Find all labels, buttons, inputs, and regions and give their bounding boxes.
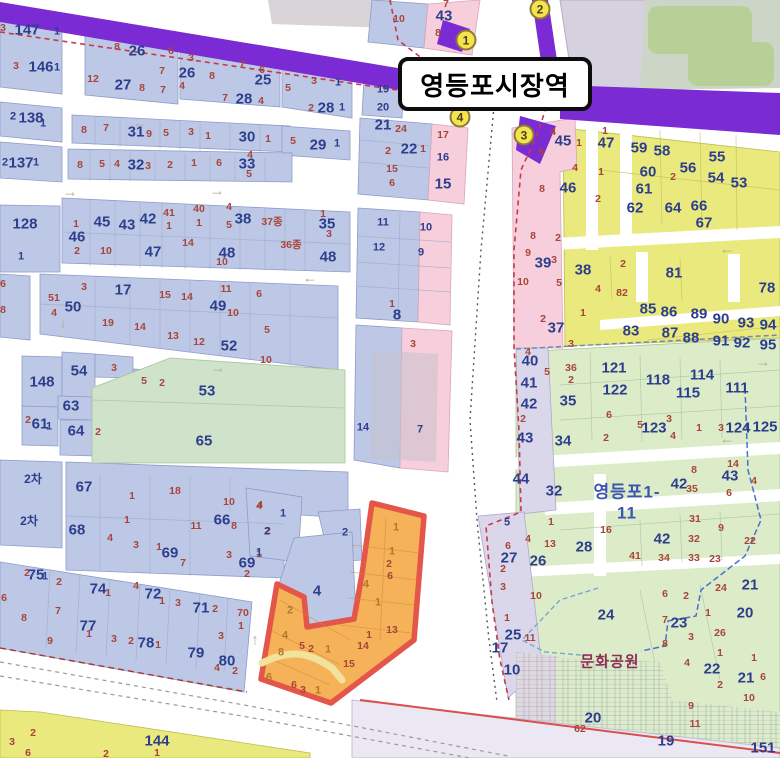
parcel-number: 6 — [266, 673, 272, 684]
parcel-number: 2 — [30, 728, 36, 739]
parcel-number: 3 — [300, 685, 306, 696]
parcel-number: 46 — [69, 230, 86, 245]
parcel-number: 61 — [636, 182, 653, 197]
parcel-number: 13 — [544, 539, 556, 550]
parcel-number: 9 — [718, 523, 724, 534]
parcel-number: 1 — [335, 78, 341, 89]
parcel-number: 90 — [713, 312, 730, 327]
parcel-number: 17 — [115, 283, 132, 298]
parcel-number: 3 — [81, 282, 87, 293]
parcel-number: 32 — [688, 534, 700, 545]
parcel-number: 1 — [54, 27, 60, 38]
parcel-number: 3 — [410, 339, 416, 350]
parcel-number: 2차 — [20, 515, 38, 527]
parcel-number: 1 — [393, 523, 399, 534]
parcel-number: 6 — [291, 680, 297, 691]
parcel-number: 14 — [182, 238, 194, 249]
parcel-number: 29 — [310, 138, 327, 153]
parcel-number: 9 — [47, 636, 53, 647]
parcel-number: 83 — [623, 324, 640, 339]
parcel-number: 7 — [662, 615, 668, 626]
direction-arrow: ↑ — [251, 632, 259, 649]
parcel-number: 1 — [18, 252, 24, 263]
parcel-number: 3 — [568, 339, 574, 350]
parcel-number: 93 — [738, 316, 755, 331]
parcel-number: 5 — [99, 159, 105, 170]
parcel-number: 2 — [620, 259, 626, 270]
parcel-number: 1 — [548, 517, 554, 528]
parcel-number: 6 — [1, 593, 7, 604]
parcel-number: 35 — [560, 394, 577, 409]
parcel-number: 22 — [704, 662, 721, 677]
parcel-number: 2차 — [24, 473, 42, 485]
parcel-number: 2 — [500, 564, 506, 575]
parcel-number: 5 — [504, 518, 510, 529]
parcel-number: 8 — [139, 83, 145, 94]
parcel-number: 1 — [325, 645, 331, 656]
parcel-number: 32 — [546, 484, 563, 499]
parcel-number: 10 — [216, 257, 228, 268]
parcel-number: 8 — [539, 184, 545, 195]
label-layer: 3147131461826631227877264872567284315228… — [0, 0, 780, 758]
parcel-number: 14 — [134, 322, 146, 333]
parcel-number: 47 — [145, 245, 162, 260]
parcel-number: 40 — [193, 204, 205, 215]
parcel-number: 14 — [357, 641, 369, 652]
parcel-number: 3 — [145, 161, 151, 172]
parcel-number: 5 — [163, 128, 169, 139]
parcel-number: 2 — [670, 172, 676, 183]
parcel-number: 2 — [520, 414, 526, 425]
parcel-number: 1 — [124, 515, 130, 526]
parcel-number: 3 — [0, 23, 6, 34]
parcel-number: 81 — [666, 266, 683, 281]
direction-arrow: ← — [133, 115, 148, 132]
parcel-number: 4 — [133, 581, 139, 592]
parcel-number: 4 — [179, 81, 185, 92]
parcel-number: 12 — [373, 243, 385, 254]
parcel-number: 42 — [654, 532, 671, 547]
subway-exit-badge[interactable]: 1 — [456, 30, 477, 51]
parcel-number: 74 — [90, 582, 107, 597]
parcel-number: 2 — [212, 604, 218, 615]
parcel-number: 1 — [205, 131, 211, 142]
parcel-number: 1 — [580, 308, 586, 319]
place-label: 문화공원 — [580, 655, 639, 670]
parcel-number: 1 — [265, 134, 271, 145]
parcel-number: 5 — [538, 147, 544, 158]
parcel-number: 1 — [602, 126, 608, 137]
parcel-number: 28 — [576, 540, 593, 555]
parcel-number: 67 — [76, 480, 93, 495]
parcel-number: 7 — [180, 558, 186, 569]
parcel-number: 2 — [287, 606, 293, 617]
parcel-number: 4 — [684, 658, 690, 669]
parcel-number: 6 — [662, 589, 668, 600]
parcel-number: 1 — [196, 218, 202, 229]
parcel-number: 1 — [33, 158, 39, 169]
parcel-number: 3 — [111, 634, 117, 645]
subway-exit-badge[interactable]: 2 — [530, 0, 551, 20]
parcel-number: 44 — [513, 472, 530, 487]
parcel-number: 42 — [140, 212, 157, 227]
parcel-number: 26 — [714, 628, 726, 639]
parcel-number: 7 — [239, 60, 245, 71]
parcel-number: 79 — [188, 646, 205, 661]
parcel-number: 5 — [285, 83, 291, 94]
parcel-number: 3 — [311, 76, 317, 87]
parcel-number: 8 — [393, 308, 401, 323]
parcel-number: 4 — [282, 631, 288, 642]
parcel-number: 1 — [86, 629, 92, 640]
parcel-number: 5 — [141, 376, 147, 387]
parcel-number: 8 — [77, 160, 83, 171]
parcel-number: 4 — [258, 96, 264, 107]
parcel-number: 3 — [666, 414, 672, 425]
parcel-number: 6 — [168, 46, 174, 57]
parcel-number: 35 — [686, 484, 698, 495]
direction-arrow: → — [756, 354, 771, 371]
parcel-number: 3 — [551, 255, 557, 266]
parcel-number: 3 — [218, 631, 224, 642]
parcel-number: 1 — [705, 608, 711, 619]
parcel-number: 147 — [14, 23, 39, 38]
map-canvas[interactable]: 영등포시장역 314713146182663122787726487256728… — [0, 0, 780, 758]
parcel-number: 10 — [504, 663, 521, 678]
parcel-number: 115 — [676, 386, 700, 401]
parcel-number: 4 — [313, 584, 321, 599]
parcel-number: 36 — [565, 363, 577, 374]
parcel-number: 26 — [179, 66, 196, 81]
parcel-number: 33 — [688, 553, 700, 564]
parcel-number: 59 — [631, 141, 648, 156]
parcel-number: 10 — [420, 223, 432, 234]
parcel-number: 1 — [191, 158, 197, 169]
parcel-number: 34 — [555, 434, 572, 449]
parcel-number: 1 — [154, 748, 160, 758]
parcel-number: 4 — [114, 159, 120, 170]
parcel-number: 1 — [339, 103, 345, 114]
parcel-number: 2 — [103, 749, 109, 758]
parcel-number: 8 — [21, 613, 27, 624]
parcel-number: 85 — [640, 302, 657, 317]
parcel-number: 10 — [223, 497, 235, 508]
parcel-number: 87 — [662, 326, 679, 341]
parcel-number: 2 — [25, 415, 31, 426]
parcel-number: 94 — [760, 318, 777, 333]
parcel-number: 8 — [691, 465, 697, 476]
parcel-number: 13 — [386, 625, 398, 636]
parcel-number: 54 — [708, 171, 725, 186]
parcel-number: 64 — [665, 201, 682, 216]
parcel-number: 2 — [95, 427, 101, 438]
parcel-number: 3 — [500, 582, 506, 593]
parcel-number: 19 — [377, 85, 389, 96]
direction-arrow: ← — [720, 241, 735, 258]
parcel-number: 9 — [418, 248, 424, 259]
parcel-number: 24 — [715, 583, 727, 594]
parcel-number: 41 — [163, 208, 175, 219]
parcel-number: 2 — [603, 433, 609, 444]
parcel-number: 24 — [395, 124, 407, 135]
parcel-number: 19 — [658, 734, 675, 749]
direction-arrow: ← — [303, 270, 318, 287]
parcel-number: 1 — [696, 423, 702, 434]
parcel-number: 128 — [12, 217, 37, 232]
parcel-number: 7 — [159, 66, 165, 77]
parcel-number: 26 — [129, 44, 146, 59]
parcel-number: 1 — [576, 138, 582, 149]
parcel-number: 2 — [555, 233, 561, 244]
parcel-number: 53 — [731, 176, 748, 191]
parcel-number: 66 — [214, 513, 231, 528]
parcel-number: 65 — [196, 434, 213, 449]
parcel-number: 4 — [214, 663, 220, 674]
parcel-number: 15 — [435, 177, 452, 192]
parcel-number: 4 — [751, 476, 757, 487]
parcel-number: 1 — [159, 596, 165, 607]
parcel-number: 23 — [709, 554, 721, 565]
parcel-number: 42 — [671, 477, 688, 492]
parcel-number: 7 — [103, 123, 109, 134]
parcel-number: 42 — [521, 397, 538, 412]
parcel-number: 16 — [600, 525, 612, 536]
parcel-number: 1 — [366, 630, 372, 641]
parcel-number: 6 — [726, 488, 732, 499]
parcel-number: 62 — [627, 201, 644, 216]
parcel-number: 4 — [525, 534, 531, 545]
parcel-number: 11 — [689, 719, 700, 730]
parcel-number: 148 — [29, 375, 54, 390]
parcel-number: 43 — [722, 469, 739, 484]
parcel-number: 2 — [385, 146, 391, 157]
parcel-number: 38 — [575, 263, 592, 278]
parcel-number: 1 — [129, 491, 135, 502]
parcel-number: 6 — [256, 289, 262, 300]
parcel-number: 88 — [683, 331, 700, 346]
parcel-number: 46 — [560, 181, 577, 196]
parcel-number: 14 — [357, 423, 369, 434]
parcel-number: 10 — [393, 14, 405, 25]
parcel-number: 15 — [386, 164, 398, 175]
parcel-number: 5 — [299, 641, 305, 652]
parcel-number: 43 — [119, 218, 136, 233]
parcel-number: 55 — [709, 150, 726, 165]
parcel-number: 1 — [40, 119, 46, 130]
parcel-number: 2 — [595, 194, 601, 205]
parcel-number: 48 — [320, 250, 337, 265]
parcel-number: 5 — [556, 278, 562, 289]
parcel-number: 151 — [750, 741, 775, 756]
direction-arrow: ← — [720, 431, 735, 448]
parcel-number: 3 — [688, 632, 694, 643]
parcel-number: 1 — [375, 598, 381, 609]
parcel-number: 43 — [517, 431, 534, 446]
parcel-number: 2 — [244, 569, 250, 580]
parcel-number: 6 — [25, 748, 31, 758]
parcel-number: 1 — [166, 221, 172, 232]
parcel-number: 10 — [260, 355, 272, 366]
parcel-number: 34 — [658, 553, 670, 564]
parcel-number: 2 — [308, 103, 314, 114]
parcel-number: 2 — [167, 160, 173, 171]
station-label[interactable]: 영등포시장역 — [398, 57, 592, 111]
parcel-number: 1 — [320, 209, 326, 220]
parcel-number: 6 — [389, 178, 395, 189]
parcel-number: 123 — [641, 421, 666, 436]
parcel-number: 1 — [155, 640, 161, 651]
parcel-number: 1 — [504, 613, 510, 624]
parcel-number: 24 — [598, 608, 615, 623]
parcel-number: 8 — [114, 42, 120, 53]
parcel-number: 2 — [308, 644, 314, 655]
parcel-number: 15 — [159, 290, 171, 301]
parcel-number: 2 — [56, 577, 62, 588]
parcel-number: 41 — [521, 376, 538, 391]
parcel-number: 2 — [2, 158, 8, 169]
parcel-number: 45 — [94, 215, 111, 230]
parcel-number: 56 — [680, 161, 697, 176]
parcel-number: 1 — [717, 648, 723, 659]
parcel-number: 10 — [743, 693, 755, 704]
parcel-number: 8 — [0, 305, 6, 316]
parcel-number: 1 — [334, 139, 340, 150]
parcel-number: 4 — [247, 150, 253, 161]
parcel-number: 45 — [555, 134, 572, 149]
parcel-number: 13 — [167, 331, 179, 342]
parcel-number: 52 — [221, 339, 238, 354]
parcel-number: 17 — [437, 130, 449, 141]
parcel-number: 67 — [696, 216, 713, 231]
parcel-number: 19 — [102, 318, 114, 329]
parcel-number: 4 — [670, 431, 676, 442]
parcel-number: 37 — [548, 321, 565, 336]
parcel-number: 21 — [738, 671, 755, 686]
parcel-number: 17 — [492, 641, 509, 656]
parcel-number: 23 — [671, 616, 688, 631]
parcel-number: 10 — [227, 308, 239, 319]
parcel-number: 6 — [387, 571, 393, 582]
parcel-number: 8 — [662, 639, 668, 650]
parcel-number: 26 — [530, 554, 547, 569]
parcel-number: 1 — [54, 63, 60, 74]
parcel-number: 41 — [629, 551, 641, 562]
parcel-number: 2 — [128, 636, 134, 647]
subway-exit-badge[interactable]: 3 — [514, 125, 535, 146]
parcel-number: 1 — [389, 547, 395, 558]
parcel-number: 3 — [9, 737, 15, 748]
parcel-number: 3 — [188, 127, 194, 138]
parcel-number: 7 — [55, 606, 61, 617]
parcel-number: 70 — [237, 608, 249, 619]
parcel-number: 2 — [540, 314, 546, 325]
parcel-number: 62 — [574, 724, 586, 735]
parcel-number: 82 — [616, 288, 628, 299]
parcel-number: 37종 — [261, 217, 282, 228]
parcel-number: 31 — [689, 514, 701, 525]
direction-arrow: → — [63, 184, 78, 201]
parcel-number: 9 — [688, 701, 694, 712]
parcel-number: 1 — [105, 588, 111, 599]
parcel-number: 16 — [437, 153, 449, 164]
direction-arrow: → — [211, 360, 226, 377]
parcel-number: 12 — [87, 74, 99, 85]
parcel-number: 11 — [524, 633, 535, 644]
parcel-number: 2 — [264, 527, 270, 538]
parcel-number: 3 — [226, 550, 232, 561]
parcel-number: 20 — [377, 103, 389, 114]
parcel-number: 10 — [517, 277, 529, 288]
parcel-number: 47 — [598, 136, 615, 151]
parcel-number: 50 — [65, 300, 82, 315]
parcel-number: 6 — [760, 672, 766, 683]
parcel-number: 22 — [744, 536, 756, 547]
parcel-number: 4 — [363, 580, 369, 591]
parcel-number: 111 — [725, 381, 748, 396]
parcel-number: 20 — [737, 606, 754, 621]
parcel-number: 146 — [28, 60, 53, 75]
parcel-number: 30 — [239, 130, 256, 145]
parcel-number: 5 — [246, 169, 252, 180]
parcel-number: 15 — [343, 659, 355, 670]
parcel-number: 2 — [10, 112, 16, 123]
parcel-number: 2 — [159, 378, 165, 389]
parcel-number: 39 — [535, 256, 552, 271]
parcel-number: 6 — [216, 158, 222, 169]
parcel-number: 5 — [264, 325, 270, 336]
parcel-number: 8 — [435, 28, 441, 39]
parcel-number: 4 — [257, 500, 263, 511]
parcel-number: 21 — [742, 578, 759, 593]
parcel-number: 3 — [111, 363, 117, 374]
parcel-number: 1 — [46, 422, 52, 433]
parcel-number: 2 — [717, 680, 723, 691]
parcel-number: 6 — [606, 410, 612, 421]
parcel-number: 38 — [235, 212, 252, 227]
parcel-number: 8 — [81, 125, 87, 136]
parcel-number: 5 — [290, 136, 296, 147]
parcel-number: 40 — [522, 354, 539, 369]
parcel-number: 10 — [100, 246, 112, 257]
parcel-number: 51 — [48, 293, 60, 304]
parcel-number: 1 — [238, 621, 244, 632]
parcel-number: 64 — [68, 424, 85, 439]
parcel-number: 63 — [63, 399, 80, 414]
parcel-number: 4 — [226, 202, 232, 213]
parcel-number: 118 — [646, 373, 670, 388]
parcel-number: 92 — [734, 336, 751, 351]
parcel-number: 121 — [601, 361, 626, 376]
parcel-number: 5 — [544, 367, 550, 378]
place-label: 11 — [617, 505, 637, 522]
parcel-number: 2 — [342, 528, 348, 539]
parcel-number: 1 — [42, 572, 48, 583]
parcel-number: 32 — [128, 158, 145, 173]
parcel-number: 28 — [318, 101, 335, 116]
parcel-number: 43 — [436, 9, 453, 24]
parcel-number: 1 — [315, 686, 321, 697]
parcel-number: 6 — [0, 279, 6, 290]
parcel-number: 7 — [417, 425, 423, 436]
parcel-number: 49 — [210, 299, 227, 314]
parcel-number: 20 — [585, 711, 602, 726]
parcel-number: 36종 — [280, 240, 301, 251]
parcel-number: 8 — [530, 231, 536, 242]
parcel-number: 1 — [280, 509, 286, 520]
parcel-number: 1 — [598, 167, 604, 178]
parcel-number: 7 — [160, 85, 166, 96]
parcel-number: 114 — [690, 368, 714, 383]
